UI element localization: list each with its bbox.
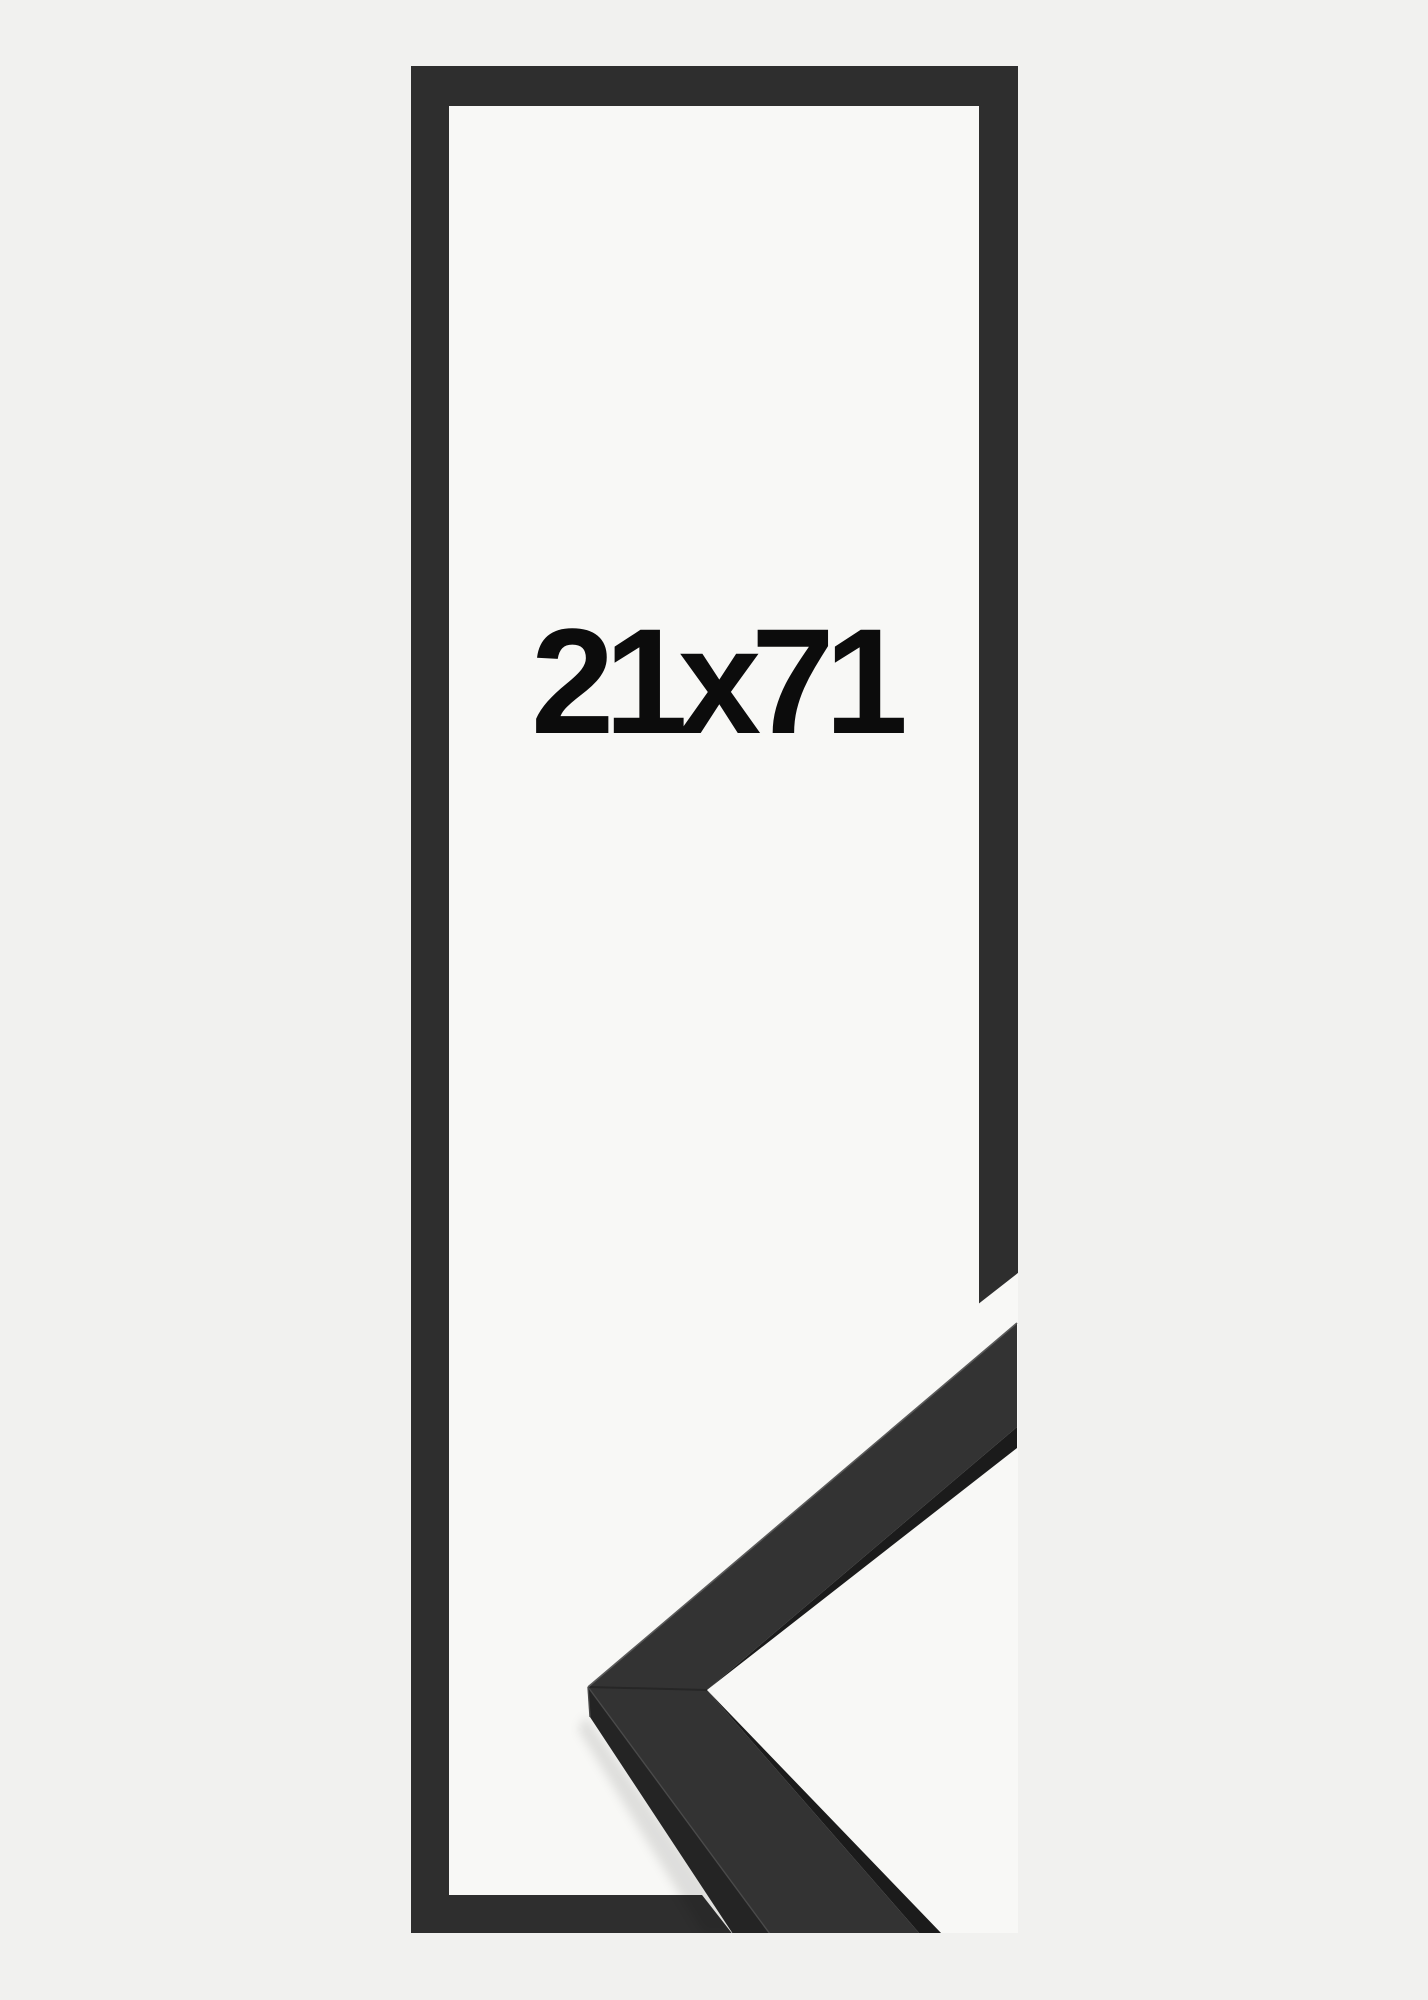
size-label: 21x71	[411, 606, 1018, 756]
page-background: { "product": { "size_label": "21x71", "d…	[0, 0, 1428, 2000]
product-photo: 21x71	[411, 66, 1018, 1933]
sample-outer-edge-highlight	[588, 1323, 1017, 1687]
corner-sample	[411, 66, 1018, 1933]
